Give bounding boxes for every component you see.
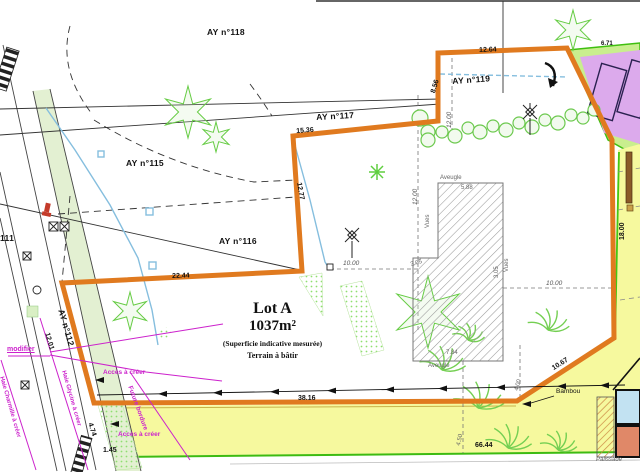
- dim-15-36: 15.36: [296, 127, 314, 135]
- marker-cross-icon: [60, 222, 69, 231]
- dim-10-00-a: 10.00: [343, 260, 359, 267]
- dashed-limits: [58, 26, 296, 282]
- dim-3-05-b: 3.05: [494, 266, 500, 278]
- parcel-label-ay118: AY n°118: [207, 27, 245, 37]
- red-mark-icon: [42, 203, 52, 217]
- hatched-building: [413, 183, 503, 361]
- parcel-label-ay116: AY n°116: [219, 236, 257, 246]
- dim-18-00: 18.00: [619, 222, 626, 240]
- curved-arrow-head: [548, 78, 558, 88]
- dim-10-00-b: 10.00: [546, 280, 562, 287]
- house-wall: [616, 426, 640, 457]
- lot-name: Lot A: [200, 300, 345, 318]
- dim-12-00-b: 12.00: [412, 189, 419, 205]
- gate-mark: [626, 152, 633, 211]
- dim-1-45: 1.45: [103, 447, 117, 454]
- corner-marker: [327, 264, 333, 270]
- label-vues-left: Vues: [425, 215, 431, 228]
- lot-note-1: (Superficie indicative mesurée): [200, 339, 345, 348]
- dim-12-00-a: 12.00: [446, 112, 453, 128]
- survey-plan: AY n°118 AY n°117 AY n°119 AY n°115 AY n…: [0, 0, 640, 472]
- label-vues-right: Vues: [504, 259, 510, 272]
- note-acces-2: Accès à créer: [118, 431, 160, 438]
- dim-7-84: 7.84: [446, 350, 458, 356]
- marker-cross-icon: [49, 222, 58, 231]
- note-acces-1: Accès à créer: [103, 369, 145, 376]
- marker-cross-icon: [21, 381, 29, 389]
- label-aveugle-bottom: Aveugle: [428, 363, 450, 369]
- house-window: [616, 390, 640, 424]
- dim-5-88: 5.88: [461, 185, 473, 191]
- parcel-label-ay117: AY n°117: [316, 110, 354, 122]
- dim-22-44: 22.44: [172, 272, 190, 280]
- marker-cross-icon: [23, 252, 31, 260]
- lot-note-2: Terrain à bâtir: [200, 351, 345, 360]
- green-asterisk: [369, 164, 385, 180]
- manhole-icon: [33, 286, 41, 294]
- dim-66-44: 66.44: [475, 442, 493, 449]
- dim-6-71: 6.71: [601, 41, 613, 47]
- wall-stripe-1: [0, 47, 19, 91]
- wall-stripe-2: [71, 435, 92, 472]
- lot-area: 1037m²: [200, 318, 345, 335]
- plan-drawing: [0, 0, 640, 472]
- house-hatch-wall: [597, 397, 614, 457]
- label-bambou: Bambou: [556, 388, 580, 395]
- zone-yellow: [108, 144, 640, 464]
- dim-38-16: 38.16: [298, 395, 316, 402]
- parcel-label-ay115: AY n°115: [126, 158, 164, 168]
- note-modifier: modifier: [7, 346, 35, 353]
- parcel-label-111: 111: [0, 233, 14, 243]
- dim-12-64: 12.64: [479, 46, 497, 54]
- lot-title-block: Lot A 1037m² (Superficie indicative mesu…: [200, 300, 345, 360]
- label-aveugle-top: Aveugle: [440, 175, 462, 181]
- label-palissade: Palissade: [596, 457, 622, 463]
